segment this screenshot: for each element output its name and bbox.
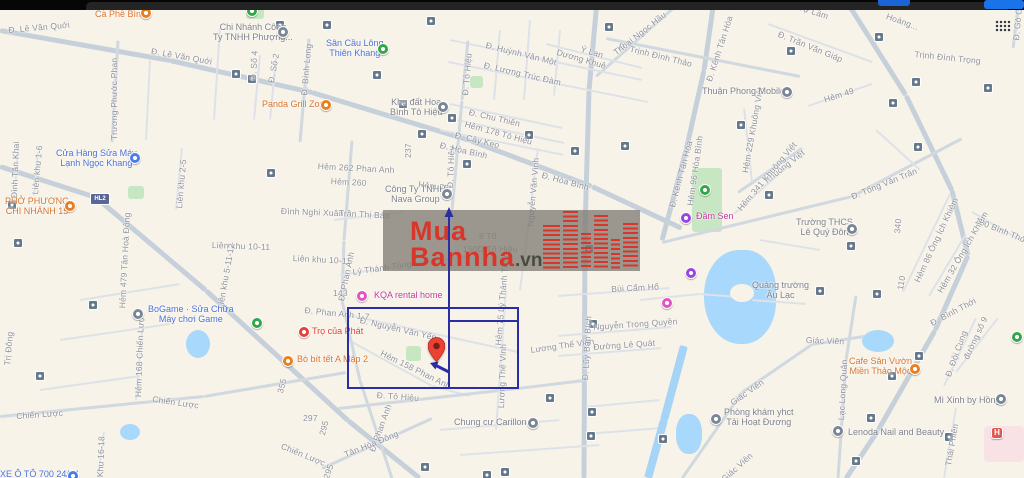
- browser-blue-chip: [878, 0, 910, 6]
- map-screenshot: Đ. Lê Văn QuớiĐ. Lê Văn QuớiTrương Phước…: [0, 0, 1024, 478]
- location-pin[interactable]: [428, 337, 445, 362]
- browser-toolbar-sliver: [86, 2, 1008, 10]
- browser-blue-button[interactable]: [984, 0, 1024, 9]
- annotation-overlay: [0, 0, 1024, 478]
- browser-top-bar: [0, 0, 1024, 10]
